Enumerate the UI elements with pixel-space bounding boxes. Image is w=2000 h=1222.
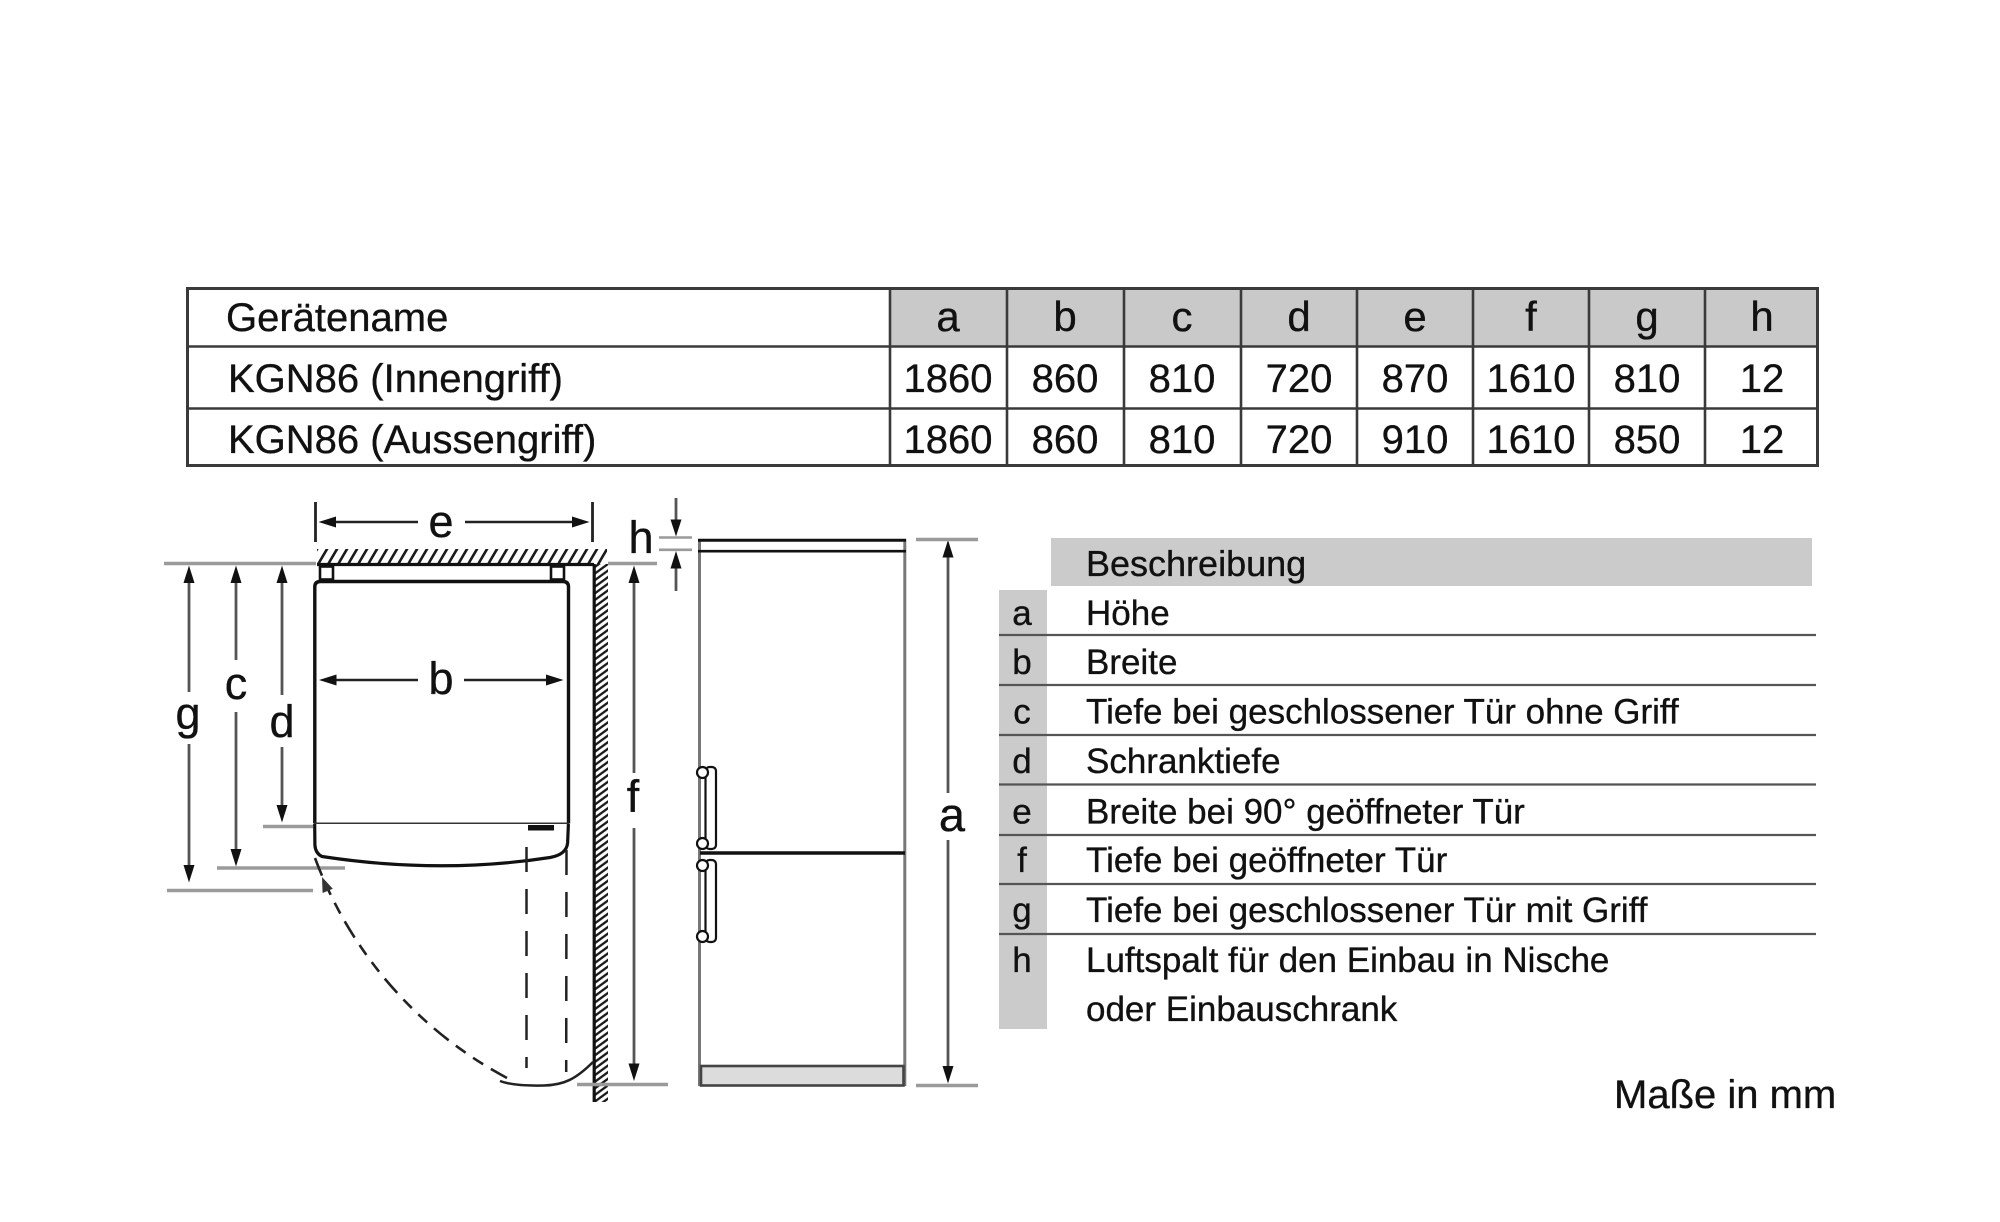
svg-text:Tiefe bei geöffneter Tür: Tiefe bei geöffneter Tür (1086, 841, 1448, 880)
svg-text:h: h (1750, 293, 1773, 340)
svg-text:d: d (1287, 293, 1310, 340)
svg-text:Luftspalt für den Einbau in Ni: Luftspalt für den Einbau in Nische (1086, 941, 1609, 980)
svg-text:f: f (1525, 293, 1537, 340)
svg-text:Breite: Breite (1086, 643, 1177, 682)
svg-text:a: a (936, 293, 960, 340)
svg-text:Beschreibung: Beschreibung (1086, 543, 1306, 584)
svg-text:c: c (1172, 293, 1193, 340)
svg-text:e: e (1012, 793, 1031, 832)
svg-text:Schranktiefe: Schranktiefe (1086, 742, 1281, 781)
svg-text:g: g (1012, 891, 1031, 930)
svg-text:Maße in mm: Maße in mm (1614, 1073, 1836, 1117)
svg-text:Tiefe bei geschlossener Tür mi: Tiefe bei geschlossener Tür mit Griff (1086, 891, 1648, 930)
svg-text:h: h (628, 512, 653, 563)
svg-text:g: g (1635, 293, 1658, 340)
svg-text:Breite bei 90° geöffneter Tür: Breite bei 90° geöffneter Tür (1086, 793, 1525, 832)
svg-text:12: 12 (1740, 357, 1785, 401)
svg-text:b: b (1012, 643, 1031, 682)
svg-text:Tiefe bei geschlossener Tür oh: Tiefe bei geschlossener Tür ohne Griff (1086, 693, 1679, 732)
svg-text:f: f (627, 771, 640, 822)
svg-text:a: a (1012, 594, 1032, 633)
svg-text:12: 12 (1740, 418, 1785, 462)
svg-text:d: d (1012, 742, 1031, 781)
svg-text:c: c (225, 658, 248, 709)
svg-text:Höhe: Höhe (1086, 594, 1170, 633)
svg-text:KGN86 (Innengriff): KGN86 (Innengriff) (228, 357, 563, 401)
svg-text:1860: 1860 (904, 357, 993, 401)
svg-text:oder Einbauschrank: oder Einbauschrank (1086, 990, 1398, 1029)
svg-text:Gerätename: Gerätename (226, 296, 448, 340)
svg-text:c: c (1013, 693, 1031, 732)
svg-text:e: e (1403, 293, 1426, 340)
svg-text:810: 810 (1149, 418, 1216, 462)
svg-text:e: e (428, 496, 453, 547)
svg-text:KGN86 (Aussengriff): KGN86 (Aussengriff) (228, 418, 596, 462)
svg-text:b: b (428, 653, 453, 704)
svg-text:b: b (1053, 293, 1076, 340)
svg-text:720: 720 (1266, 418, 1333, 462)
svg-text:860: 860 (1032, 357, 1099, 401)
svg-text:910: 910 (1382, 418, 1449, 462)
svg-text:860: 860 (1032, 418, 1099, 462)
svg-text:810: 810 (1614, 357, 1681, 401)
svg-text:a: a (939, 788, 966, 841)
svg-text:g: g (175, 688, 200, 739)
svg-text:720: 720 (1266, 357, 1333, 401)
svg-text:870: 870 (1382, 357, 1449, 401)
svg-text:d: d (269, 696, 294, 747)
svg-text:850: 850 (1614, 418, 1681, 462)
svg-text:810: 810 (1149, 357, 1216, 401)
svg-text:h: h (1012, 941, 1031, 980)
svg-text:1610: 1610 (1487, 357, 1576, 401)
svg-text:1610: 1610 (1487, 418, 1576, 462)
svg-text:1860: 1860 (904, 418, 993, 462)
svg-text:f: f (1017, 841, 1027, 880)
